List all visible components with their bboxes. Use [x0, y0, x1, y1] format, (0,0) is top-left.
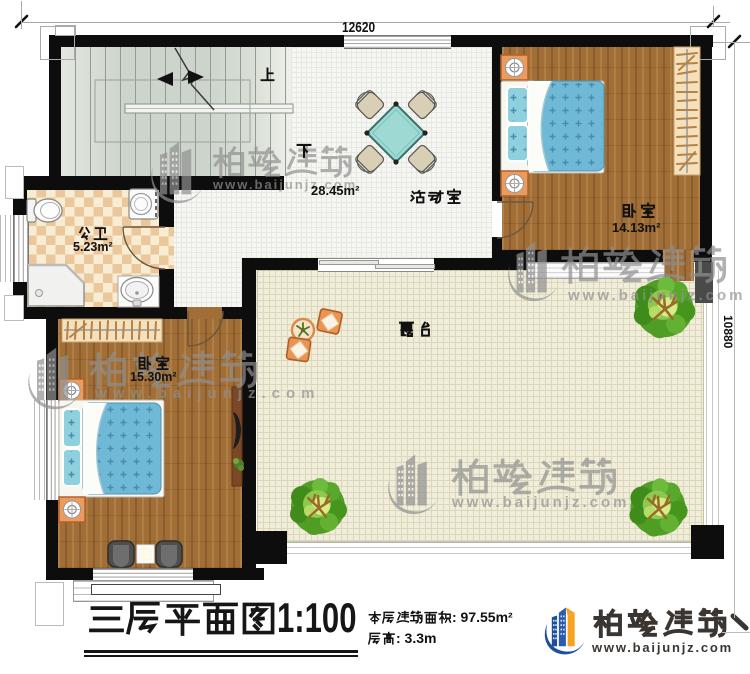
svg-text:www.baijunjz.com: www.baijunjz.com: [451, 494, 629, 511]
svg-text:www.baijunjz.com: www.baijunjz.com: [94, 385, 320, 402]
svg-text:www.baijunjz.com: www.baijunjz.com: [567, 287, 745, 304]
